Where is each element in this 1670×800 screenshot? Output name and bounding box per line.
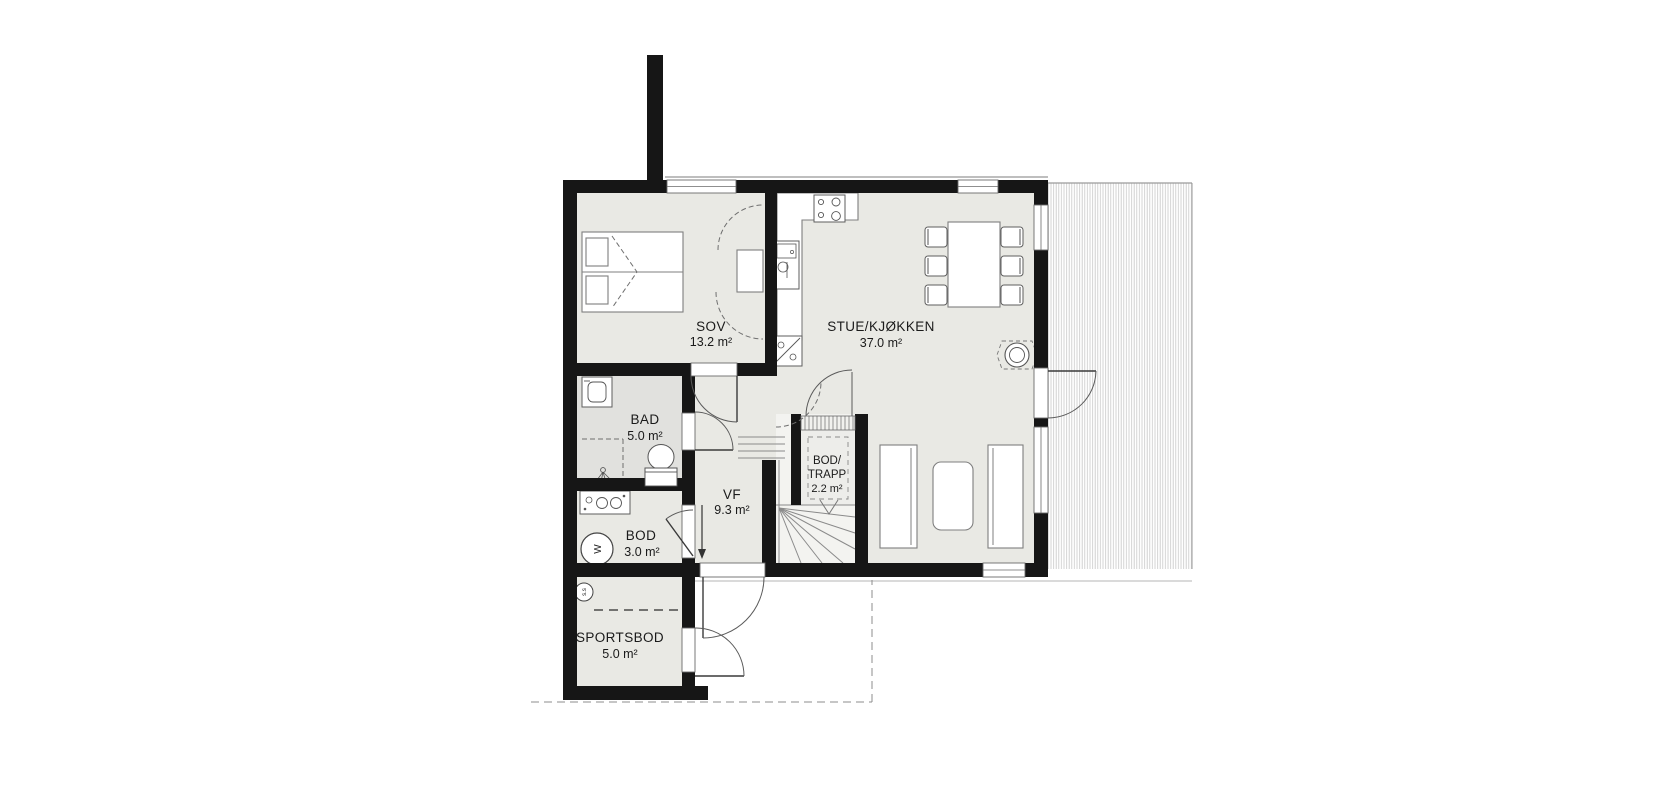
room-area-bod: 3.0 m² [624, 545, 659, 559]
cooktop-icon [814, 195, 845, 222]
room-label-bad: BAD [631, 412, 660, 427]
room-label-bod-trapp-2: TRAPP [808, 469, 847, 481]
room-area-bad: 5.0 m² [627, 429, 662, 443]
dining-table-icon [948, 222, 1000, 307]
room-label-vf: VF [723, 487, 741, 502]
floor-drain-icon: s.s [575, 583, 593, 601]
terrace-deck [1048, 183, 1192, 569]
water-heater-icon: W [581, 533, 613, 565]
party-wall-stub [647, 55, 663, 182]
room-label-sportsbod: SPORTSBOD [576, 630, 664, 645]
room-label-sov: SOV [696, 319, 726, 334]
window-living-right-upper [1034, 205, 1048, 250]
vanity-basins-icon [580, 491, 630, 514]
room-area-vf: 9.3 m² [714, 503, 749, 517]
svg-text:W: W [593, 544, 604, 554]
room-area-sportsbod: 5.0 m² [602, 647, 637, 661]
toilet-cistern [645, 472, 677, 486]
kitchen-sink-icon [774, 241, 799, 289]
room-area-bod-trapp: 2.2 m² [811, 483, 843, 495]
window-living-bottom [983, 563, 1025, 577]
sportsbod-door [682, 628, 744, 676]
room-area-sov: 13.2 m² [690, 335, 732, 349]
window-living-top [958, 180, 998, 193]
entrance-door [700, 563, 765, 638]
room-area-stue-kjokken: 37.0 m² [860, 336, 902, 350]
floor-plan-drawing: W s.s [0, 0, 1670, 800]
window-bedroom [667, 180, 736, 193]
coffee-table-icon [933, 462, 973, 530]
washing-machine-icon [582, 377, 612, 407]
svg-text:s.s: s.s [582, 588, 588, 596]
floor-plan-page: W s.s [0, 0, 1670, 800]
double-bed-icon [582, 232, 683, 312]
room-label-stue-kjokken: STUE/KJØKKEN [827, 319, 935, 334]
room-label-bod-trapp-1: BOD/ [813, 455, 842, 467]
window-living-right-lower [1034, 427, 1048, 513]
room-label-bod: BOD [626, 528, 656, 543]
